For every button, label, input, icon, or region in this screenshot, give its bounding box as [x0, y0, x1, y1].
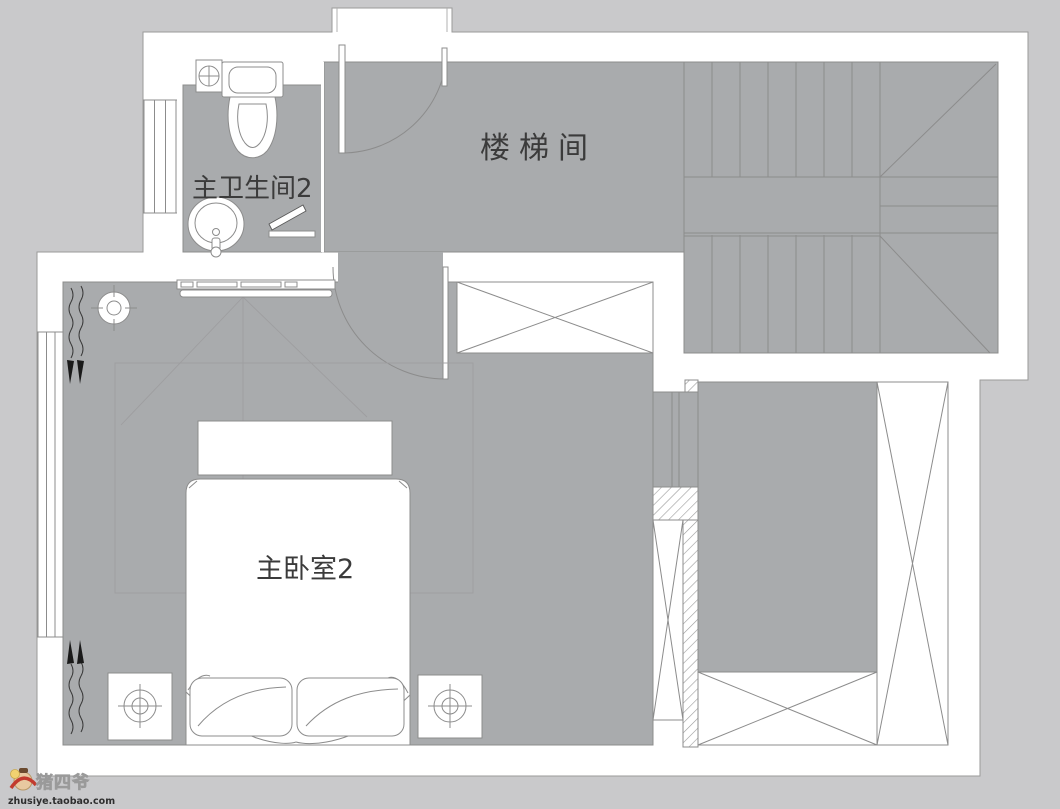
closet-passage	[653, 392, 698, 487]
closet-floor	[698, 382, 877, 672]
stairwell-label: 楼梯间	[480, 131, 597, 166]
floor-plan-canvas: 楼梯间 主卫生间2 主卧室2 猪四爷 zhusiye.taobao.com	[0, 0, 1060, 809]
master-bedroom-label: 主卧室2	[256, 554, 354, 585]
floor-plan-drawing: 楼梯间 主卫生间2 主卧室2 猪四爷 zhusiye.taobao.com	[0, 0, 1060, 809]
bench	[198, 421, 392, 475]
stairwell-door-stop	[442, 48, 447, 86]
nightstand-right	[418, 675, 482, 738]
stairwell-door-leaf	[339, 45, 345, 153]
bathroom-door-threshold	[269, 231, 315, 237]
tv-cabinet	[177, 280, 335, 297]
watermark-url: zhusiye.taobao.com	[8, 796, 115, 807]
master-bathroom-label: 主卫生间2	[192, 174, 313, 204]
bedroom-door-opening	[338, 252, 443, 283]
stairs-floor	[684, 62, 998, 353]
hatch-block	[653, 487, 698, 520]
pillow	[297, 678, 404, 736]
watermark-brand: 猪四爷	[36, 772, 90, 793]
hatch-block	[685, 380, 698, 392]
bed	[186, 479, 410, 745]
bedroom-door-leaf	[443, 267, 448, 379]
bathroom-stairwell-partition	[321, 62, 324, 252]
hatch-block	[683, 520, 698, 747]
pillow	[190, 678, 292, 736]
nightstand-left	[108, 673, 172, 740]
